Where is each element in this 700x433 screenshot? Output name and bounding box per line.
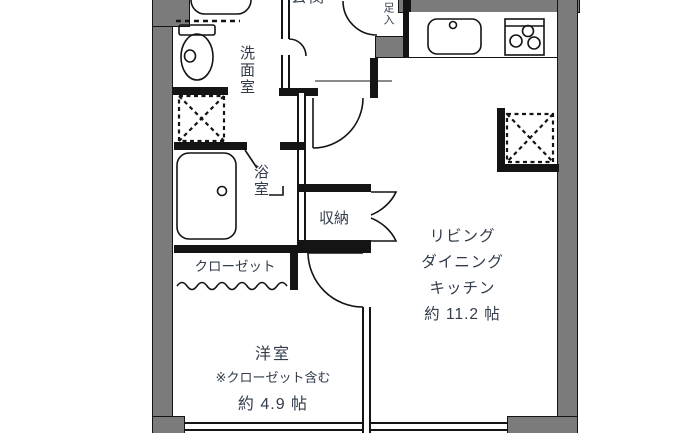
washing-machine-space-icon	[179, 96, 224, 141]
room-label-washroom: 洗面室	[236, 45, 257, 96]
room-label-bathroom: 浴室	[250, 164, 271, 198]
western-room-name: 洋室	[175, 340, 371, 364]
refrigerator-space-icon	[507, 114, 553, 162]
living-line-2: ダイニング	[395, 250, 530, 276]
living-line-1: リビング	[395, 224, 530, 250]
wash-basin-counter-icon	[191, 0, 251, 14]
room-label-living: リビング ダイニング キッチン 約 11.2 帖	[395, 224, 530, 328]
living-line-3: キッチン	[395, 276, 530, 302]
room-label-shoe-cabinet: 足入	[380, 2, 396, 26]
entrance-door-arc	[343, 1, 377, 35]
bathtub-icon	[177, 153, 236, 239]
toilet-icon	[179, 25, 215, 80]
room-label-closet: クローゼット	[180, 255, 290, 275]
western-room-size: 約 4.9 帖	[175, 390, 371, 414]
hall-door-icon	[313, 98, 363, 148]
washroom-door-arc	[289, 39, 306, 56]
room-label-western: 洋室 ※クローゼット含む 約 4.9 帖	[175, 340, 371, 414]
floor-plan: 玄関 足入 洗面室 浴室 収納 クローゼット 洋室 ※クローゼット含む 約 4.…	[0, 0, 700, 433]
room-label-entrance: 玄関	[291, 0, 327, 7]
storage-bifold-door-icon	[371, 192, 396, 241]
gas-stove-icon	[505, 19, 544, 55]
kitchen-sink-icon	[428, 19, 481, 54]
western-room-door-icon	[308, 253, 363, 307]
western-room-note: ※クローゼット含む	[175, 367, 371, 386]
living-size: 約 11.2 帖	[395, 302, 530, 328]
closet-accordion-line	[177, 283, 287, 290]
room-label-storage: 収納	[304, 207, 364, 228]
